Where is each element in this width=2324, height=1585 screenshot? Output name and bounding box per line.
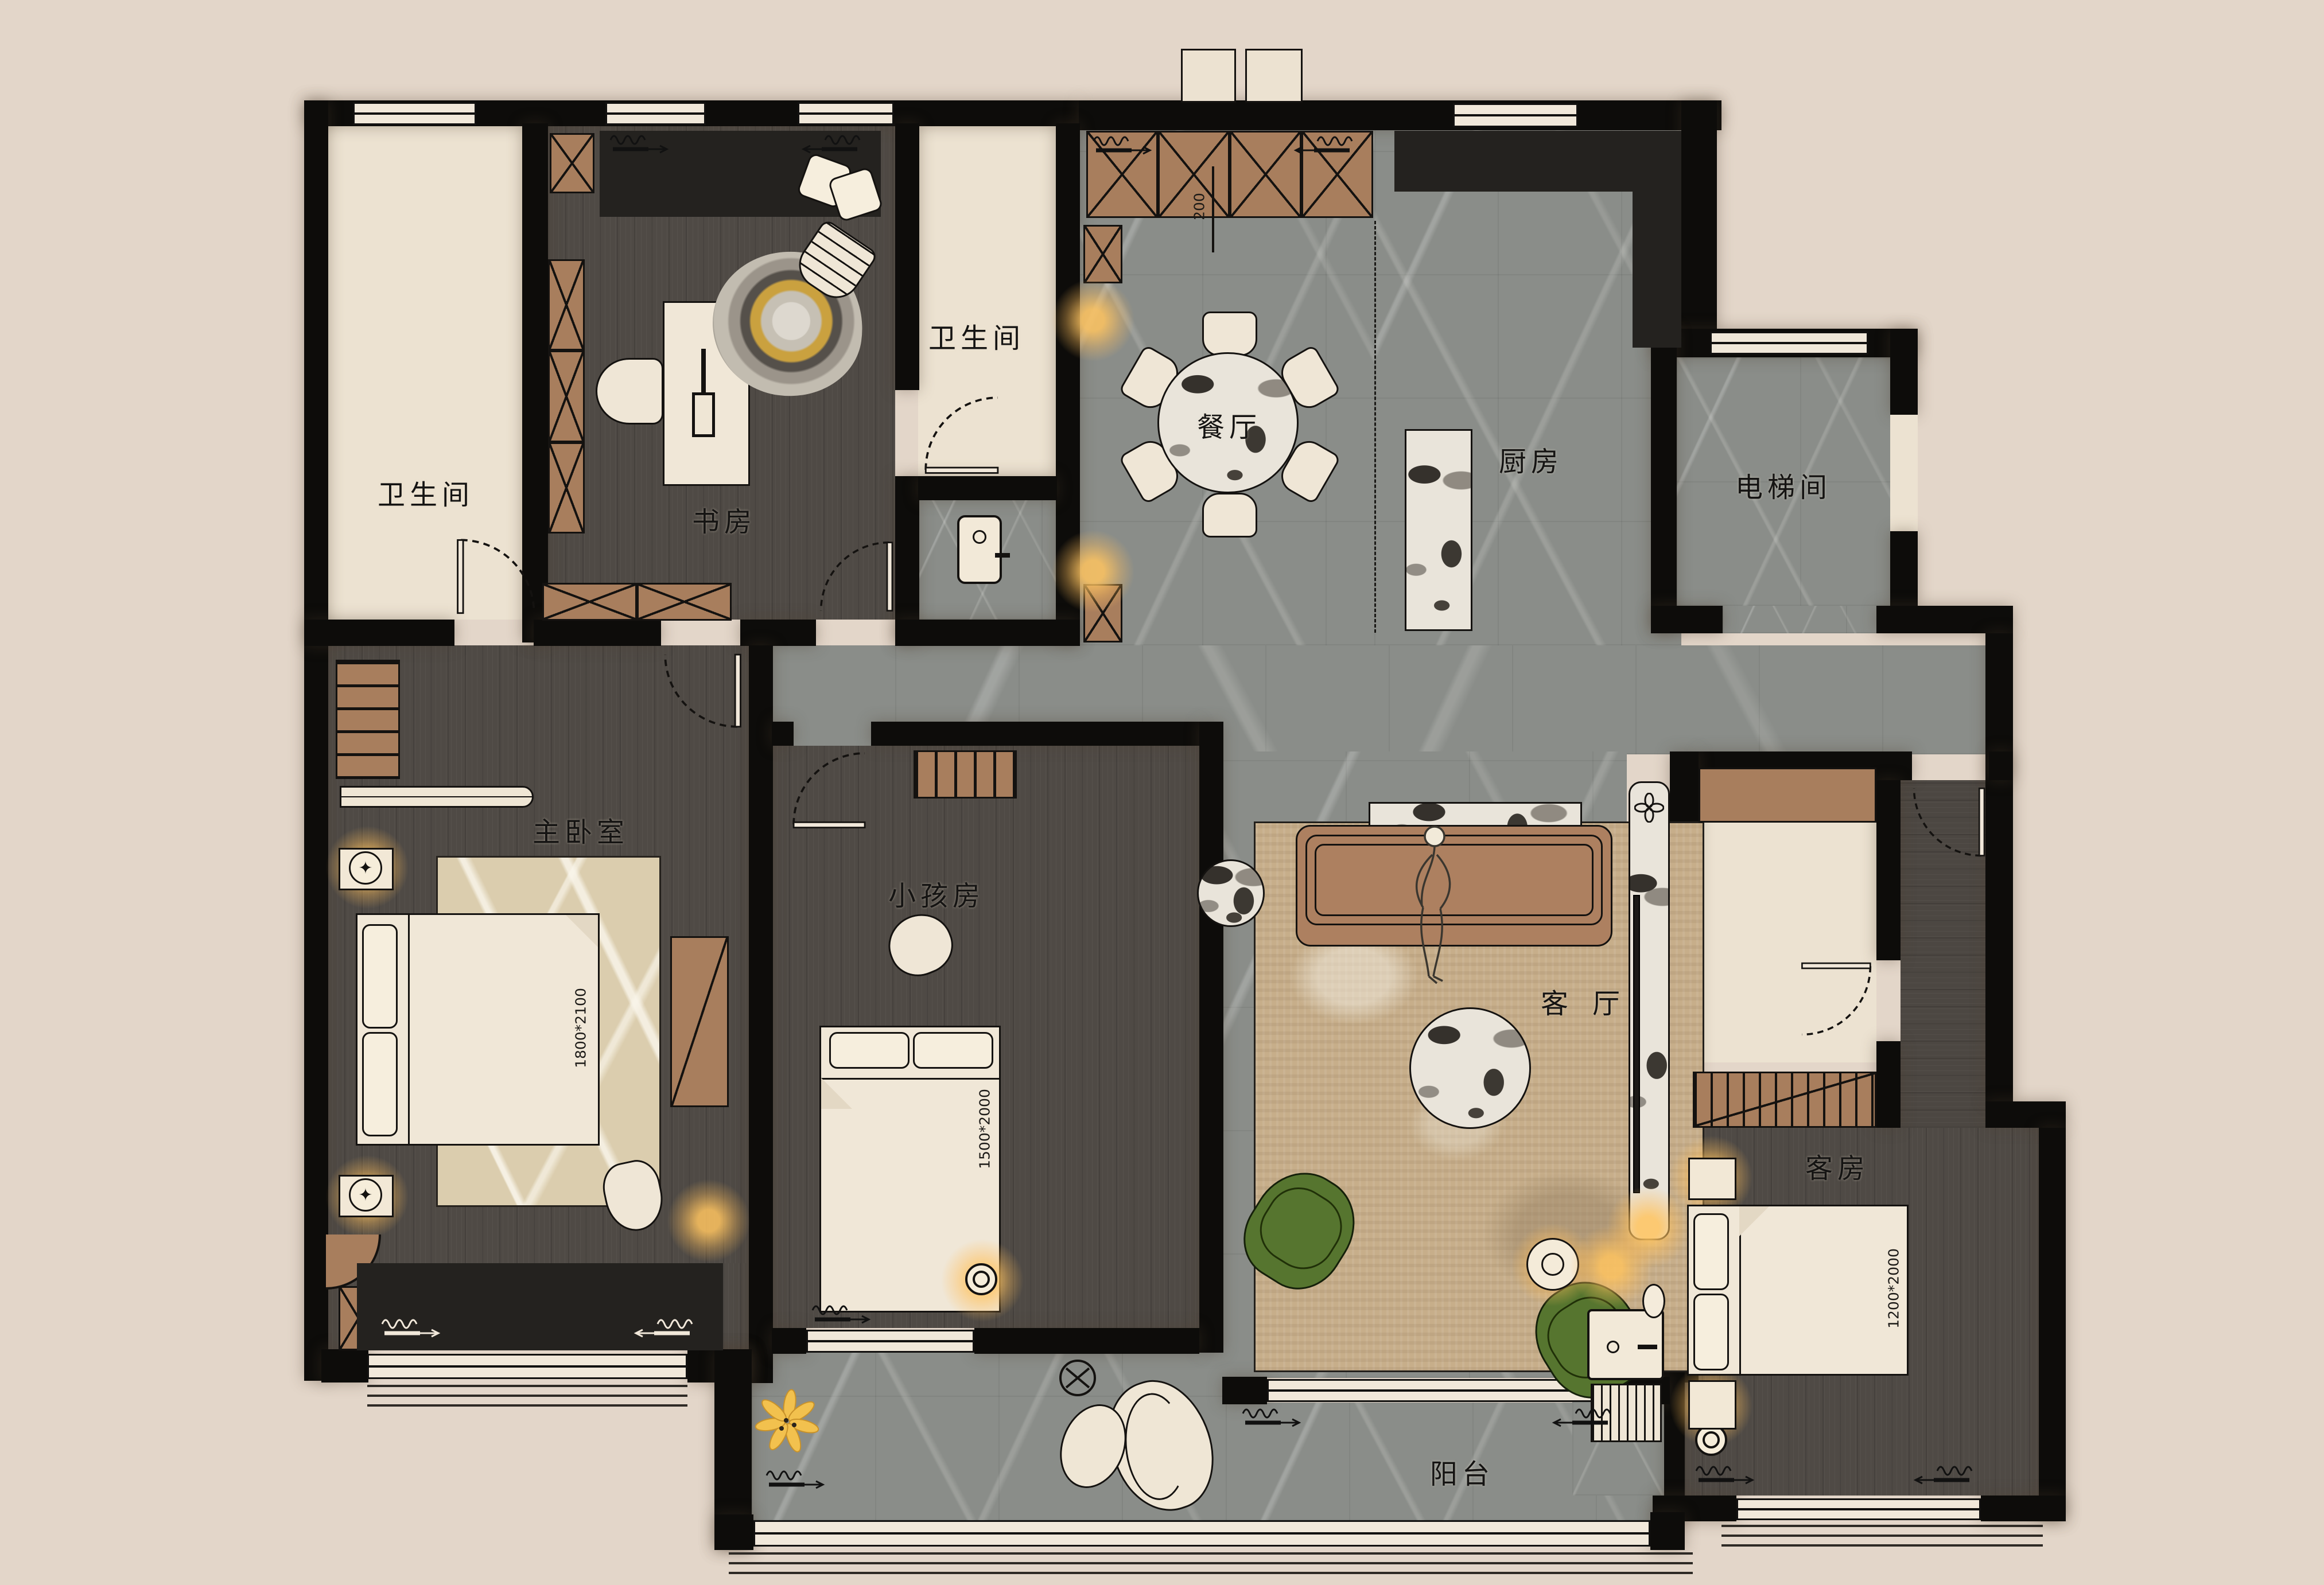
kitchen-label: 厨房 bbox=[1499, 439, 1563, 479]
curtain-icon bbox=[1239, 1407, 1304, 1430]
tv-screen bbox=[1633, 895, 1640, 1193]
elev-door-gap bbox=[1890, 415, 1918, 531]
guest-label: 客房 bbox=[1805, 1146, 1870, 1186]
wall-balcony-post-r bbox=[1650, 1512, 1685, 1550]
floor-plan-canvas: 书房 卫生间 卫生间 200 餐厅 厨房 电梯间 ✦ ✦ bbox=[0, 0, 2324, 1585]
curtain-icon bbox=[809, 1303, 873, 1326]
window-top-3 bbox=[798, 102, 894, 125]
desk-lamp-stem bbox=[701, 349, 706, 392]
dim-200: 200 bbox=[1191, 193, 1208, 220]
door-study bbox=[815, 533, 896, 621]
door-corridor bbox=[1908, 781, 1988, 862]
master-dresser bbox=[340, 786, 534, 808]
entry-porch-panel-2 bbox=[1245, 49, 1303, 103]
sill-balcony bbox=[729, 1552, 1693, 1578]
wall-master-bottom-a bbox=[321, 1349, 368, 1383]
bath-top-label: 卫生间 bbox=[928, 316, 1025, 356]
dining-chair bbox=[1202, 493, 1257, 538]
master-label: 主卧室 bbox=[533, 809, 629, 850]
study-low-cabinet bbox=[542, 583, 732, 621]
toilet-flush-bar bbox=[995, 553, 1010, 558]
pillow bbox=[362, 924, 398, 1029]
window-guest bbox=[1736, 1498, 1981, 1520]
curtain-icon bbox=[379, 1317, 443, 1340]
wall-study-bathT-a bbox=[895, 123, 919, 390]
door-kids bbox=[787, 747, 872, 832]
curtain-icon bbox=[631, 1317, 695, 1340]
pillow bbox=[829, 1032, 910, 1069]
door-ensuite bbox=[1795, 959, 1876, 1041]
wall-right-outer bbox=[1985, 633, 2013, 1101]
kitchen-counter-top bbox=[1394, 131, 1681, 192]
sill-master bbox=[367, 1385, 687, 1412]
coffee-table bbox=[1409, 1007, 1531, 1129]
desk-chair bbox=[596, 358, 663, 425]
curtain-icon bbox=[1291, 134, 1355, 157]
shelf-x-cell bbox=[637, 583, 732, 621]
bed-line bbox=[408, 915, 410, 1144]
dim-line bbox=[1212, 166, 1214, 252]
kids-label: 小孩房 bbox=[888, 873, 985, 913]
master-floor-edge-r bbox=[723, 1263, 749, 1349]
bed-fold bbox=[821, 1078, 852, 1109]
wall-ensuite-right-b bbox=[1876, 1041, 1901, 1128]
wall-elev-left bbox=[1651, 329, 1677, 633]
shelf-x-cell bbox=[548, 442, 585, 533]
window-top-2 bbox=[605, 102, 706, 125]
balcony-label: 阳台 bbox=[1430, 1451, 1494, 1491]
entry-porch-panel-1 bbox=[1181, 49, 1236, 103]
wall-top-right bbox=[1079, 100, 1721, 130]
pillow bbox=[913, 1032, 993, 1069]
guest-bed bbox=[1687, 1205, 1909, 1376]
study-shelving bbox=[548, 259, 585, 533]
guest-bed-size: 1200*2000 bbox=[1886, 1248, 1902, 1329]
guest-nightstand-2 bbox=[1688, 1380, 1736, 1430]
master-bed bbox=[356, 913, 600, 1146]
wc-toilet bbox=[957, 515, 1002, 584]
desk-lamp-head bbox=[692, 392, 715, 437]
curtain-icon bbox=[799, 133, 863, 156]
curtain-icon bbox=[1693, 1464, 1757, 1487]
study-cabinet-topleft bbox=[550, 133, 594, 193]
master-wardrobe bbox=[336, 660, 400, 779]
door-master bbox=[659, 647, 745, 733]
sill-guest bbox=[1721, 1525, 2043, 1550]
entry-threshold bbox=[1723, 606, 1876, 633]
wall-elev-right-a bbox=[1890, 329, 1918, 415]
wall-balcony-post-l bbox=[714, 1514, 753, 1550]
ensuite-top-cabinet bbox=[1699, 768, 1876, 823]
wall-kids-bottom-b bbox=[974, 1328, 1199, 1354]
wall-guest-bottom-b bbox=[1981, 1496, 2066, 1521]
wall-block-bottom-4 bbox=[895, 620, 1080, 646]
toilet-detail bbox=[973, 530, 986, 544]
washer-door-circle bbox=[1607, 1341, 1619, 1353]
wall-kids-top-b bbox=[871, 722, 1199, 746]
kitchen-island bbox=[1405, 429, 1472, 631]
kitchen-boundary-dashed bbox=[1374, 221, 1376, 633]
kitchen-counter-right bbox=[1633, 192, 1681, 348]
star-lamp-icon: ✦ bbox=[349, 1178, 382, 1212]
wall-kids-right bbox=[1199, 722, 1223, 1353]
master-bed-size: 1800*2100 bbox=[573, 988, 589, 1068]
shelf-x-cell bbox=[548, 351, 585, 442]
wall-guest-right bbox=[2039, 1128, 2066, 1521]
lounger-line bbox=[1120, 1390, 1191, 1503]
balcony-table bbox=[1059, 1360, 1096, 1396]
star-lamp-icon: ✦ bbox=[349, 851, 382, 885]
wall-living-bottom-a bbox=[1222, 1377, 1267, 1404]
guest-nightstand-1 bbox=[1688, 1158, 1736, 1200]
leaf-decor-icon bbox=[1634, 793, 1664, 823]
door-bath-left bbox=[453, 533, 541, 621]
bath-left-label: 卫生间 bbox=[378, 472, 474, 512]
wall-guest-step bbox=[1985, 1101, 2066, 1128]
shelf-x-cell bbox=[548, 259, 585, 351]
wall-study-bathT-b bbox=[895, 476, 919, 644]
person-figure bbox=[1393, 820, 1502, 992]
round-lamp-icon bbox=[965, 1263, 997, 1295]
wall-block-bottom-3 bbox=[740, 620, 816, 646]
study-label: 书房 bbox=[692, 499, 756, 539]
wall-lamp-glow-1 bbox=[1050, 277, 1136, 363]
wall-elev-right-b bbox=[1890, 531, 1918, 606]
utility-glow bbox=[1568, 1224, 1654, 1310]
window-kitchen bbox=[1453, 103, 1578, 127]
wall-hall-bottom-b bbox=[1989, 751, 2013, 780]
wall-bathT-wc bbox=[918, 476, 1057, 500]
kids-shelf bbox=[914, 750, 1017, 799]
bed-fold bbox=[1739, 1206, 1769, 1236]
window-top-1 bbox=[353, 102, 476, 125]
dining-side-cabinet-1 bbox=[1083, 225, 1122, 283]
pillow bbox=[1693, 1213, 1729, 1290]
elevator-label: 电梯间 bbox=[1735, 465, 1832, 505]
curtain-icon bbox=[1090, 134, 1155, 157]
kids-bed-size: 1500*2000 bbox=[977, 1089, 993, 1169]
window-balcony bbox=[753, 1520, 1650, 1547]
window-elevator bbox=[1710, 332, 1868, 355]
wall-lamp-glow-2 bbox=[1050, 528, 1136, 614]
bed-fold bbox=[566, 915, 598, 947]
wall-block-bottom-2 bbox=[534, 620, 661, 646]
curtain-icon bbox=[607, 133, 671, 156]
wall-kids-top-a bbox=[772, 722, 794, 746]
wall-ensuite-right-a bbox=[1876, 780, 1901, 960]
dining-label: 餐厅 bbox=[1197, 404, 1261, 445]
window-kids bbox=[806, 1330, 974, 1353]
curtain-icon bbox=[1911, 1464, 1975, 1487]
pillow bbox=[1693, 1294, 1729, 1370]
curtain-icon bbox=[1549, 1407, 1614, 1430]
window-master bbox=[367, 1354, 687, 1379]
wall-master-right bbox=[749, 645, 773, 1383]
guest-wardrobe bbox=[1693, 1072, 1876, 1128]
wall-kitchen-right bbox=[1681, 100, 1717, 332]
pillow bbox=[362, 1032, 398, 1136]
plant-icon bbox=[753, 1387, 822, 1456]
shelf-x-cell bbox=[542, 583, 637, 621]
washer bbox=[1587, 1309, 1664, 1380]
master-corner-glow bbox=[666, 1178, 752, 1264]
wall-block-bottom-1 bbox=[304, 620, 454, 646]
master-side-cabinet bbox=[670, 936, 729, 1107]
side-table-inner bbox=[1541, 1253, 1564, 1276]
washer-handle bbox=[1638, 1345, 1657, 1349]
dining-chair bbox=[1202, 311, 1257, 356]
wall-elev-bottom-b bbox=[1876, 606, 2013, 633]
wall-elev-bottom-a bbox=[1651, 606, 1723, 633]
door-bath-top bbox=[919, 391, 1005, 477]
side-table-marble bbox=[1197, 859, 1265, 927]
wall-kids-bottom-a bbox=[772, 1328, 806, 1354]
curtain-icon bbox=[763, 1469, 827, 1491]
